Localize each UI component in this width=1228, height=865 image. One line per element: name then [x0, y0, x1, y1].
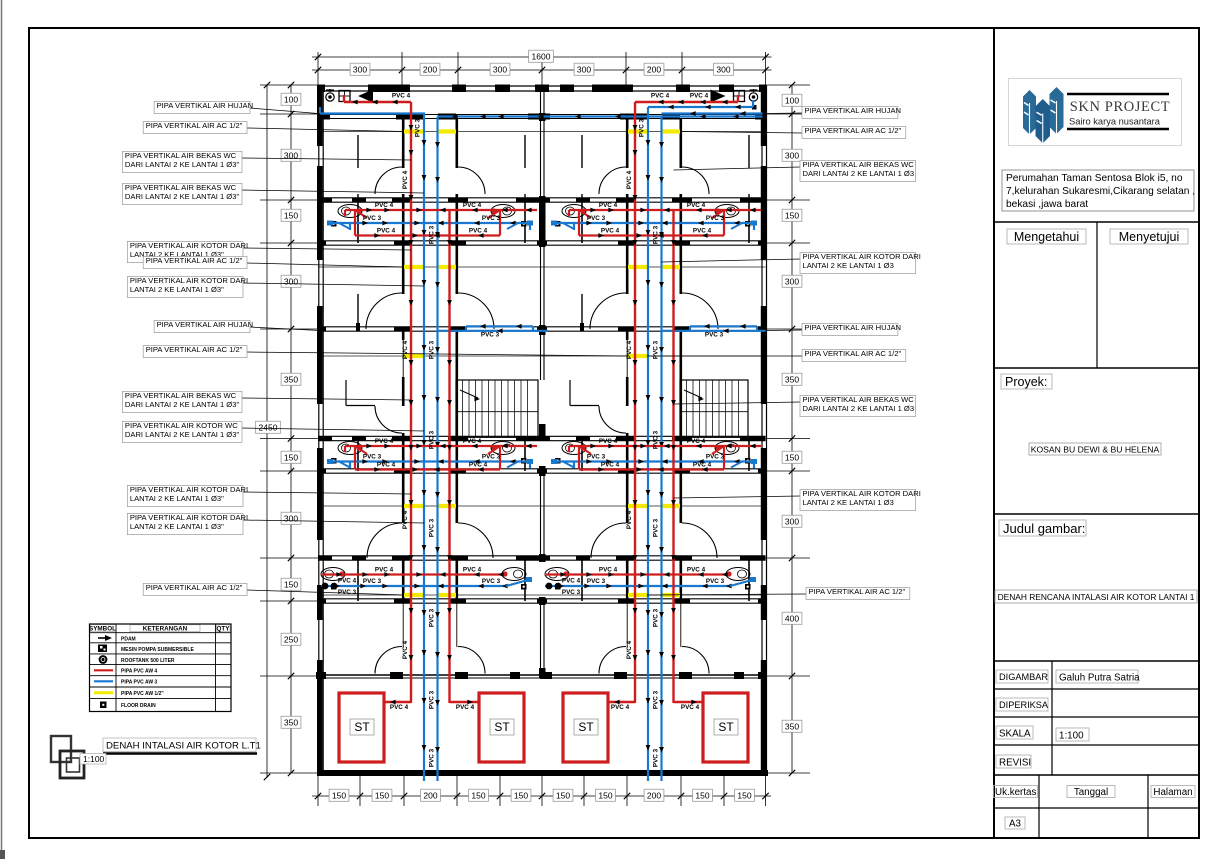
svg-text:300: 300 [493, 65, 507, 75]
svg-text:PIPA VERTIKAL AIR HUJAN: PIPA VERTIKAL AIR HUJAN [157, 101, 254, 110]
svg-text:Mengetahui: Mengetahui [1014, 230, 1079, 244]
svg-text:PVC 4: PVC 4 [375, 202, 394, 209]
svg-text:SYMBOL: SYMBOL [89, 625, 116, 632]
svg-text:PIPA VERTIKAL AIR AC 1/2": PIPA VERTIKAL AIR AC 1/2" [805, 349, 902, 358]
svg-text:Galuh Putra Satria: Galuh Putra Satria [1059, 673, 1140, 684]
svg-text:PVC 3: PVC 3 [429, 225, 436, 244]
svg-text:300: 300 [353, 65, 367, 75]
svg-text:PVC 3: PVC 3 [562, 589, 581, 596]
svg-text:PVC 3: PVC 3 [653, 518, 660, 537]
svg-text:LANTAI 2 KE LANTAI 1 Ø3: LANTAI 2 KE LANTAI 1 Ø3 [803, 261, 894, 270]
svg-text:PVC 3: PVC 3 [429, 690, 436, 709]
svg-text:FLOOR DRAIN: FLOOR DRAIN [121, 703, 156, 709]
svg-text:150: 150 [785, 453, 799, 463]
svg-text:PVC 4: PVC 4 [402, 640, 409, 659]
svg-text:PVC 3: PVC 3 [415, 118, 422, 137]
svg-text:PVC 3: PVC 3 [653, 430, 660, 449]
svg-text:PVC 3: PVC 3 [653, 690, 660, 709]
svg-text:Tanggal: Tanggal [1074, 787, 1108, 798]
svg-text:PVC 3: PVC 3 [482, 215, 501, 222]
svg-text:Uk.kertas: Uk.kertas [995, 787, 1036, 798]
svg-text:PVC 3: PVC 3 [429, 518, 436, 537]
svg-text:PVC 4: PVC 4 [463, 438, 482, 445]
svg-text:LANTAI 2 KE LANTAI 1 Ø3": LANTAI 2 KE LANTAI 1 Ø3" [130, 285, 224, 294]
svg-text:ROOFTANK 500 LITER: ROOFTANK 500 LITER [121, 658, 175, 664]
svg-text:PVC 4: PVC 4 [377, 228, 396, 235]
svg-text:ST: ST [354, 720, 370, 734]
svg-text:PVC 3: PVC 3 [429, 430, 436, 449]
svg-text:PVC 4: PVC 4 [562, 578, 581, 585]
svg-text:Sairo karya nusantara: Sairo karya nusantara [1069, 117, 1161, 127]
svg-text:PVC 4: PVC 4 [690, 93, 709, 100]
svg-text:DARI LANTAI 2 KE LANTAI 1 Ø3": DARI LANTAI 2 KE LANTAI 1 Ø3" [125, 160, 240, 169]
svg-text:PIPA VERTIKAL AIR HUJAN: PIPA VERTIKAL AIR HUJAN [157, 320, 254, 329]
svg-text:PVC 4: PVC 4 [693, 228, 712, 235]
svg-text:150: 150 [284, 211, 298, 221]
svg-text:150: 150 [471, 791, 485, 801]
svg-text:PVC 3: PVC 3 [653, 748, 660, 767]
svg-text:PVC 3: PVC 3 [363, 578, 382, 585]
svg-text:PVC 4: PVC 4 [469, 462, 488, 469]
svg-text:LANTAI 2 KE LANTAI 1 Ø3": LANTAI 2 KE LANTAI 1 Ø3" [130, 522, 224, 531]
svg-text:400: 400 [785, 614, 799, 624]
svg-text:PIPA VERTIKAL AIR AC 1/2": PIPA VERTIKAL AIR AC 1/2" [809, 587, 906, 596]
svg-text:PVC 4: PVC 4 [601, 462, 620, 469]
svg-text:PVC 4: PVC 4 [626, 170, 633, 189]
svg-text:PIPA VERTIKAL AIR KOTOR DARI: PIPA VERTIKAL AIR KOTOR DARI [803, 489, 921, 498]
svg-text:PVC 3: PVC 3 [639, 118, 646, 137]
svg-text:300: 300 [785, 151, 799, 161]
svg-text:PIPA VERTIKAL AIR HUJAN: PIPA VERTIKAL AIR HUJAN [805, 106, 902, 115]
svg-text:PVC 4: PVC 4 [601, 228, 620, 235]
svg-text:PVC 3: PVC 3 [363, 215, 382, 222]
svg-text:100: 100 [284, 95, 298, 105]
svg-text:1600: 1600 [532, 52, 551, 62]
svg-text:DIPERIKSA: DIPERIKSA [999, 700, 1049, 710]
svg-text:PVC 4: PVC 4 [599, 202, 618, 209]
svg-text:PIPA VERTIKAL AIR BEKAS WC: PIPA VERTIKAL AIR BEKAS WC [125, 151, 237, 160]
svg-text:PVC 4: PVC 4 [599, 438, 618, 445]
svg-text:Proyek:: Proyek: [1005, 375, 1047, 389]
svg-text:300: 300 [577, 65, 591, 75]
svg-text:MESIN POMPA SUBMERSIBLE: MESIN POMPA SUBMERSIBLE [121, 647, 194, 653]
svg-text:DENAH INTALASI AIR KOTOR L.T1: DENAH INTALASI AIR KOTOR L.T1 [106, 741, 261, 752]
svg-text:PVC 3: PVC 3 [481, 332, 500, 339]
svg-text:DARI LANTAI 2 KE LANTAI 1 Ø3": DARI LANTAI 2 KE LANTAI 1 Ø3" [125, 400, 240, 409]
svg-text:150: 150 [598, 791, 612, 801]
svg-text:PVC 3: PVC 3 [482, 454, 501, 461]
svg-text:PIPA PVC AW 1/2": PIPA PVC AW 1/2" [121, 691, 164, 697]
svg-text:200: 200 [647, 791, 661, 801]
svg-text:150: 150 [332, 791, 346, 801]
svg-text:PVC 4: PVC 4 [611, 704, 630, 711]
svg-text:REVISI: REVISI [999, 758, 1031, 769]
svg-text:PVC 3: PVC 3 [482, 578, 501, 585]
svg-text:PVC 3: PVC 3 [429, 340, 436, 359]
svg-text:PIPA VERTIKAL AIR BEKAS WC: PIPA VERTIKAL AIR BEKAS WC [125, 391, 237, 400]
svg-text:1:100: 1:100 [83, 754, 105, 764]
svg-text:150: 150 [375, 791, 389, 801]
svg-text:250: 250 [284, 635, 298, 645]
svg-text:150: 150 [556, 791, 570, 801]
svg-text:300: 300 [284, 277, 298, 287]
svg-text:200: 200 [423, 65, 437, 75]
svg-text:A3: A3 [1009, 819, 1022, 830]
svg-text:PVC 4: PVC 4 [463, 202, 482, 209]
svg-text:PVC 4: PVC 4 [687, 202, 706, 209]
svg-text:150: 150 [785, 211, 799, 221]
svg-text:PVC 3: PVC 3 [429, 608, 436, 627]
svg-text:PVC 4: PVC 4 [599, 567, 618, 574]
svg-text:PVC 3: PVC 3 [653, 608, 660, 627]
svg-text:PVC 4: PVC 4 [390, 704, 409, 711]
svg-text:SKN PROJECT: SKN PROJECT [1070, 99, 1170, 115]
svg-text:ST: ST [494, 720, 510, 734]
svg-text:QTY: QTY [217, 625, 231, 632]
svg-text:PVC 4: PVC 4 [687, 567, 706, 574]
svg-text:200: 200 [647, 65, 661, 75]
svg-text:300: 300 [284, 514, 298, 524]
svg-text:150: 150 [284, 580, 298, 590]
svg-text:PIPA VERTIKAL AIR AC 1/2": PIPA VERTIKAL AIR AC 1/2" [146, 583, 243, 592]
svg-text:bekasi ,jawa barat: bekasi ,jawa barat [1006, 199, 1088, 210]
svg-text:PVC 3: PVC 3 [587, 454, 606, 461]
svg-text:PVC 4: PVC 4 [338, 578, 357, 585]
svg-text:PVC 4: PVC 4 [377, 462, 396, 469]
svg-text:300: 300 [785, 277, 799, 287]
svg-text:PVC 4: PVC 4 [626, 640, 633, 659]
svg-text:PIPA VERTIKAL AIR KOTOR DARI: PIPA VERTIKAL AIR KOTOR DARI [130, 513, 248, 522]
svg-text:PVC 4: PVC 4 [687, 438, 706, 445]
svg-text:PIPA VERTIKAL AIR KOTOR DARI: PIPA VERTIKAL AIR KOTOR DARI [803, 252, 921, 261]
svg-text:DARI LANTAI 2 KE LANTAI 1 Ø3: DARI LANTAI 2 KE LANTAI 1 Ø3 [803, 404, 915, 413]
svg-text:PIPA VERTIKAL AIR AC 1/2": PIPA VERTIKAL AIR AC 1/2" [146, 256, 243, 265]
svg-text:PVC 4: PVC 4 [402, 340, 409, 359]
svg-text:LANTAI 2 KE LANTAI 1 Ø3": LANTAI 2 KE LANTAI 1 Ø3" [130, 494, 224, 503]
svg-text:PIPA VERTIKAL AIR AC 1/2": PIPA VERTIKAL AIR AC 1/2" [146, 121, 243, 130]
svg-text:PIPA VERTIKAL AIR HUJAN: PIPA VERTIKAL AIR HUJAN [805, 323, 902, 332]
svg-text:150: 150 [695, 791, 709, 801]
svg-text:DENAH RENCANA INTALASI AIR KOT: DENAH RENCANA INTALASI AIR KOTOR LANTAI … [998, 592, 1195, 602]
svg-text:350: 350 [785, 722, 799, 732]
svg-text:Halaman: Halaman [1153, 787, 1192, 798]
svg-text:150: 150 [514, 791, 528, 801]
svg-text:300: 300 [284, 151, 298, 161]
svg-text:150: 150 [284, 453, 298, 463]
svg-text:SKALA: SKALA [999, 729, 1031, 740]
svg-text:PVC 4: PVC 4 [463, 567, 482, 574]
svg-text:PIPA PVC AW 4: PIPA PVC AW 4 [121, 669, 157, 675]
svg-text:KOSAN BU DEWI & BU HELENA: KOSAN BU DEWI & BU HELENA [1031, 445, 1160, 455]
svg-text:PVC 4: PVC 4 [651, 93, 670, 100]
svg-text:PVC 3: PVC 3 [706, 454, 725, 461]
svg-text:100: 100 [785, 96, 799, 106]
svg-text:350: 350 [785, 375, 799, 385]
svg-text:PVC 3: PVC 3 [653, 225, 660, 244]
svg-text:DIGAMBAR: DIGAMBAR [999, 672, 1048, 682]
svg-text:PVC 4: PVC 4 [392, 93, 411, 100]
svg-text:DARI LANTAI 2 KE LANTAI 1 Ø3": DARI LANTAI 2 KE LANTAI 1 Ø3" [125, 192, 240, 201]
svg-text:PIPA VERTIKAL AIR KOTOR DARI: PIPA VERTIKAL AIR KOTOR DARI [130, 241, 248, 250]
svg-text:Judul gambar:: Judul gambar: [1003, 521, 1085, 536]
svg-text:PVC 4: PVC 4 [375, 438, 394, 445]
svg-text:DARI LANTAI 2 KE LANTAI 1 Ø3: DARI LANTAI 2 KE LANTAI 1 Ø3 [803, 169, 915, 178]
svg-text:200: 200 [423, 791, 437, 801]
svg-text:PVC 3: PVC 3 [587, 578, 606, 585]
svg-text:PVC 3: PVC 3 [587, 215, 606, 222]
svg-text:PVC 3: PVC 3 [338, 589, 357, 596]
svg-text:PVC 4: PVC 4 [375, 567, 394, 574]
svg-text:PIPA VERTIKAL AIR KOTOR DARI: PIPA VERTIKAL AIR KOTOR DARI [130, 485, 248, 494]
svg-text:150: 150 [737, 791, 751, 801]
svg-text:PVC 4: PVC 4 [402, 170, 409, 189]
svg-text:PVC 3: PVC 3 [706, 215, 725, 222]
svg-text:ST: ST [718, 720, 734, 734]
svg-text:PVC 3: PVC 3 [705, 332, 724, 339]
svg-text:PVC 4: PVC 4 [626, 510, 633, 529]
svg-text:PIPA VERTIKAL AIR BEKAS WC: PIPA VERTIKAL AIR BEKAS WC [803, 395, 915, 404]
svg-text:7,kelurahan Sukaresmi,Cikarang: 7,kelurahan Sukaresmi,Cikarang selatan , [1006, 186, 1195, 197]
svg-text:350: 350 [284, 375, 298, 385]
svg-text:DARI LANTAI 2 KE LANTAI 1 Ø3": DARI LANTAI 2 KE LANTAI 1 Ø3" [125, 430, 240, 439]
svg-text:350: 350 [284, 718, 298, 728]
svg-text:PVC 3: PVC 3 [706, 578, 725, 585]
svg-text:300: 300 [716, 65, 730, 75]
svg-text:PIPA VERTIKAL AIR AC 1/2": PIPA VERTIKAL AIR AC 1/2" [146, 345, 243, 354]
svg-text:2450: 2450 [259, 423, 278, 433]
svg-text:PVC 3: PVC 3 [363, 454, 382, 461]
svg-text:ST: ST [578, 720, 594, 734]
svg-text:PVC 4: PVC 4 [693, 462, 712, 469]
svg-text:PIPA PVC AW 3: PIPA PVC AW 3 [121, 680, 157, 686]
svg-text:PVC 4: PVC 4 [469, 228, 488, 235]
svg-text:PVC 3: PVC 3 [429, 748, 436, 767]
svg-text:Perumahan Taman Sentosa Blok i: Perumahan Taman Sentosa Blok i5, no [1006, 173, 1183, 184]
svg-text:1:100: 1:100 [1059, 731, 1084, 742]
svg-text:LANTAI 2 KE LANTAI 1 Ø3: LANTAI 2 KE LANTAI 1 Ø3 [803, 498, 894, 507]
svg-text:PIPA VERTIKAL AIR BEKAS WC: PIPA VERTIKAL AIR BEKAS WC [125, 183, 237, 192]
svg-text:PIPA VERTIKAL AIR AC 1/2": PIPA VERTIKAL AIR AC 1/2" [805, 126, 902, 135]
svg-text:PVC 4: PVC 4 [456, 704, 475, 711]
svg-text:PIPA VERTIKAL AIR KOTOR DARI: PIPA VERTIKAL AIR KOTOR DARI [130, 276, 248, 285]
svg-text:KETERANGAN: KETERANGAN [143, 625, 188, 632]
svg-text:Menyetujui: Menyetujui [1119, 230, 1179, 244]
svg-text:PIPA VERTIKAL AIR BEKAS WC: PIPA VERTIKAL AIR BEKAS WC [803, 160, 915, 169]
svg-text:PVC 4: PVC 4 [681, 704, 700, 711]
svg-text:PVC 4: PVC 4 [402, 510, 409, 529]
svg-text:PIPA VERTIKAL AIR KOTOR WC: PIPA VERTIKAL AIR KOTOR WC [125, 421, 238, 430]
svg-text:300: 300 [785, 517, 799, 527]
svg-text:PDAM: PDAM [121, 636, 136, 642]
